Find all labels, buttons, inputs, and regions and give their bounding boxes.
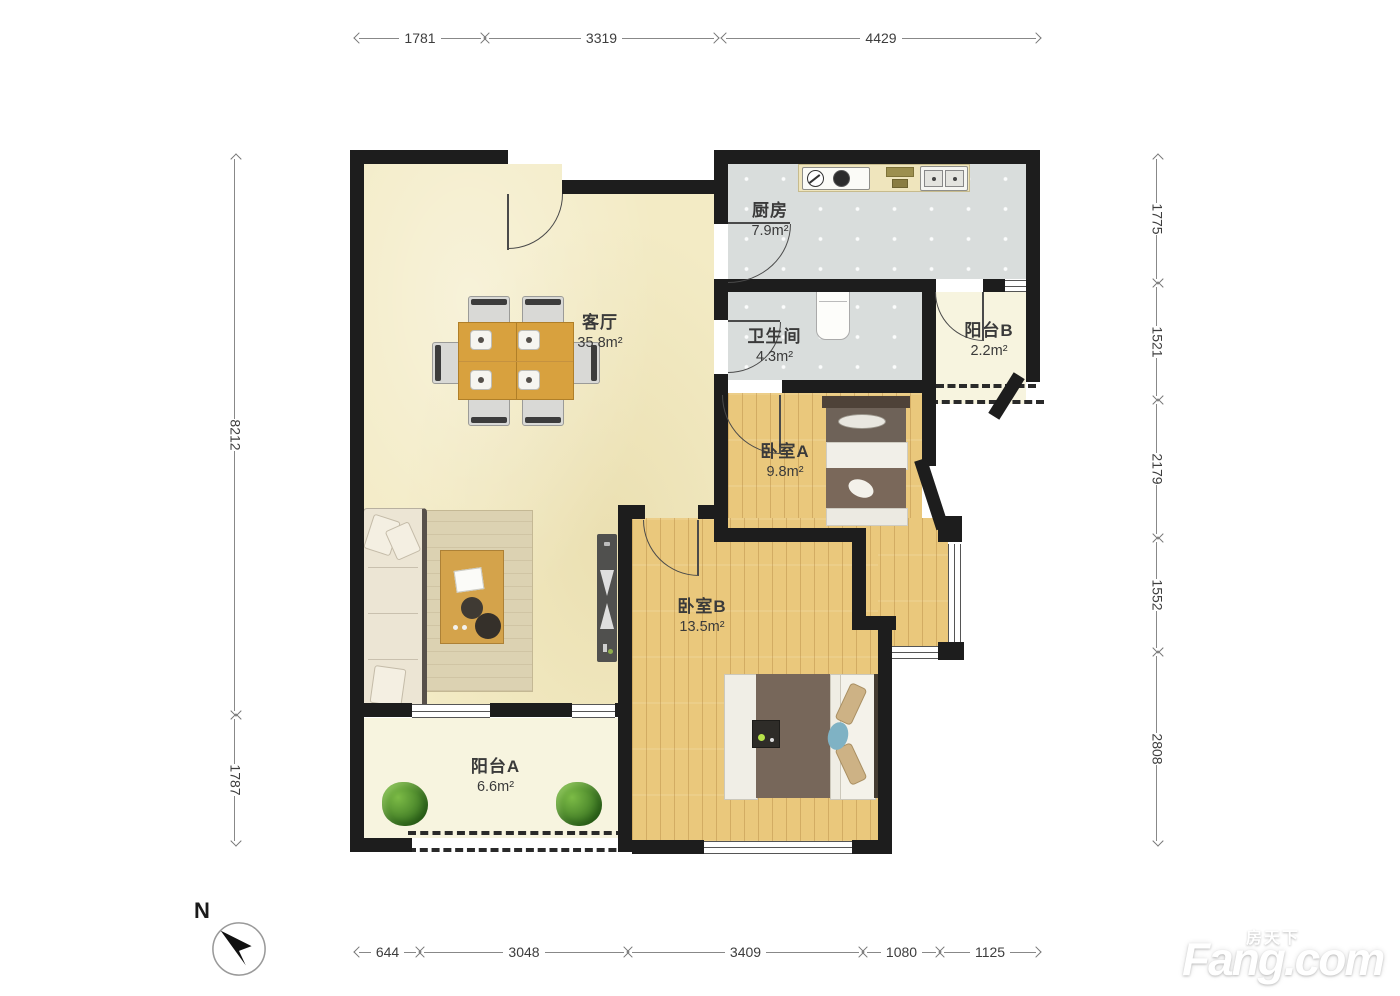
wall-segment: [922, 380, 936, 466]
room-label-bedroom-a: 卧室A 9.8m²: [735, 437, 835, 480]
kitchen-small-appliance: [892, 179, 908, 188]
kitchen-sink: [920, 166, 968, 191]
dimension-value: 3048: [503, 944, 544, 960]
stove: [802, 167, 870, 190]
wall-segment: [728, 528, 854, 542]
room-name: 卧室B: [652, 592, 752, 617]
wall-segment: [350, 150, 508, 164]
wall-segment: [938, 642, 964, 660]
dimension-left-1: 8212: [228, 155, 244, 715]
window: [948, 544, 961, 644]
room-name: 卧室A: [735, 437, 835, 462]
room-label-kitchen: 厨房 7.9m²: [715, 196, 825, 239]
window: [1002, 280, 1027, 292]
dimension-right-4: 1552: [1150, 538, 1166, 652]
dimension-value: 1080: [881, 944, 922, 960]
dimension-value: 4429: [860, 30, 901, 46]
tv-cabinet: [597, 534, 617, 662]
dimension-right-3: 2179: [1150, 400, 1166, 538]
room-label-bedroom-b: 卧室B 13.5m²: [652, 592, 752, 635]
tv-icon: [600, 596, 614, 629]
wall-segment: [562, 180, 714, 194]
room-area: 13.5m²: [652, 619, 752, 635]
entry-door-leaf: [507, 194, 509, 250]
wall-segment: [618, 505, 632, 852]
dimension-bottom-3: 3409: [628, 944, 863, 960]
wall-segment: [938, 516, 962, 542]
wall-segment: [350, 838, 412, 852]
dimension-value: 644: [371, 944, 404, 960]
compass: N: [210, 920, 268, 978]
sofa: [363, 508, 427, 714]
dimension-bottom-4: 1080: [863, 944, 940, 960]
watermark-logo: Fang.com: [1182, 936, 1383, 982]
wall-segment: [615, 703, 632, 717]
dimension-top-3: 4429: [722, 30, 1040, 46]
plate: [518, 330, 540, 350]
bedroom-a-bed: [822, 396, 910, 524]
wall-segment: [878, 616, 892, 854]
dimension-bottom-1: 644: [355, 944, 420, 960]
balcony-a-railing: [408, 831, 624, 835]
bedroom-b-door-leaf: [697, 520, 699, 575]
wall-segment: [350, 150, 364, 852]
dimension-value: 1775: [1142, 203, 1174, 234]
room-area: 2.2m²: [945, 343, 1033, 359]
balcony-b-railing: [930, 400, 1044, 404]
floorplan-canvas: 客厅 35.8m² 厨房 7.9m² 卫生间 4.3m² 阳台B 2.2m² 卧…: [0, 0, 1400, 996]
dimension-right-5: 2808: [1150, 652, 1166, 845]
room-area: 4.3m²: [722, 349, 827, 365]
window: [412, 704, 490, 718]
wall-segment: [632, 840, 704, 854]
room-name: 厨房: [715, 196, 825, 221]
wall-segment: [698, 505, 728, 519]
dimension-value: 8212: [220, 419, 252, 450]
dimension-value: 1125: [970, 944, 1010, 960]
room-label-bathroom: 卫生间 4.3m²: [722, 322, 827, 365]
kitchen-small-appliance: [886, 167, 914, 177]
dimension-value: 2808: [1142, 733, 1174, 764]
room-label-balcony-a: 阳台A 6.6m²: [448, 752, 543, 795]
room-name: 阳台A: [448, 752, 543, 777]
plant: [382, 782, 428, 826]
plate: [470, 370, 492, 390]
wall-segment: [350, 703, 412, 717]
watermark: 房天下 Fang.com: [1182, 924, 1392, 988]
room-label-balcony-b: 阳台B 2.2m²: [945, 316, 1033, 359]
wall-segment: [714, 292, 728, 320]
dimension-value: 3409: [725, 944, 766, 960]
dimension-value: 1787: [220, 764, 252, 795]
north-label: N: [194, 898, 210, 924]
dimension-top-2: 3319: [485, 30, 718, 46]
dimension-bottom-5: 1125: [940, 944, 1040, 960]
balcony-a-railing: [408, 848, 640, 852]
room-area: 6.6m²: [448, 779, 543, 795]
dimension-left-2: 1787: [228, 715, 244, 845]
dimension-value: 3319: [581, 30, 622, 46]
plate: [470, 330, 492, 350]
wall-segment: [852, 528, 866, 628]
window: [892, 646, 940, 659]
plate: [518, 370, 540, 390]
room-area: 9.8m²: [735, 464, 835, 480]
plant: [556, 782, 602, 826]
wall-segment: [983, 279, 1005, 292]
window: [572, 704, 615, 718]
dimension-value: 1552: [1142, 579, 1174, 610]
wall-segment: [852, 840, 892, 854]
room-name: 卫生间: [722, 322, 827, 347]
bedroom-b-bed: [724, 670, 878, 802]
room-area: 35.8m²: [540, 335, 660, 351]
dimension-right-1: 1775: [1150, 155, 1166, 283]
room-area: 7.9m²: [715, 223, 825, 239]
wall-segment: [714, 150, 1040, 164]
dimension-bottom-2: 3048: [420, 944, 628, 960]
window: [704, 841, 864, 854]
room-name: 客厅: [540, 308, 660, 333]
wall-segment: [782, 380, 922, 393]
coffee-table: [440, 550, 504, 644]
wall-segment: [714, 279, 935, 292]
dimension-right-2: 1521: [1150, 283, 1166, 400]
exterior-notch: [562, 150, 714, 180]
dimension-top-1: 1781: [355, 30, 485, 46]
north-arrow-icon: [210, 920, 268, 978]
room-label-living: 客厅 35.8m²: [540, 308, 660, 351]
room-name: 阳台B: [945, 316, 1033, 341]
dimension-value: 2179: [1142, 453, 1174, 484]
dimension-value: 1521: [1142, 326, 1174, 357]
dimension-value: 1781: [399, 30, 440, 46]
wall-segment: [490, 703, 572, 717]
